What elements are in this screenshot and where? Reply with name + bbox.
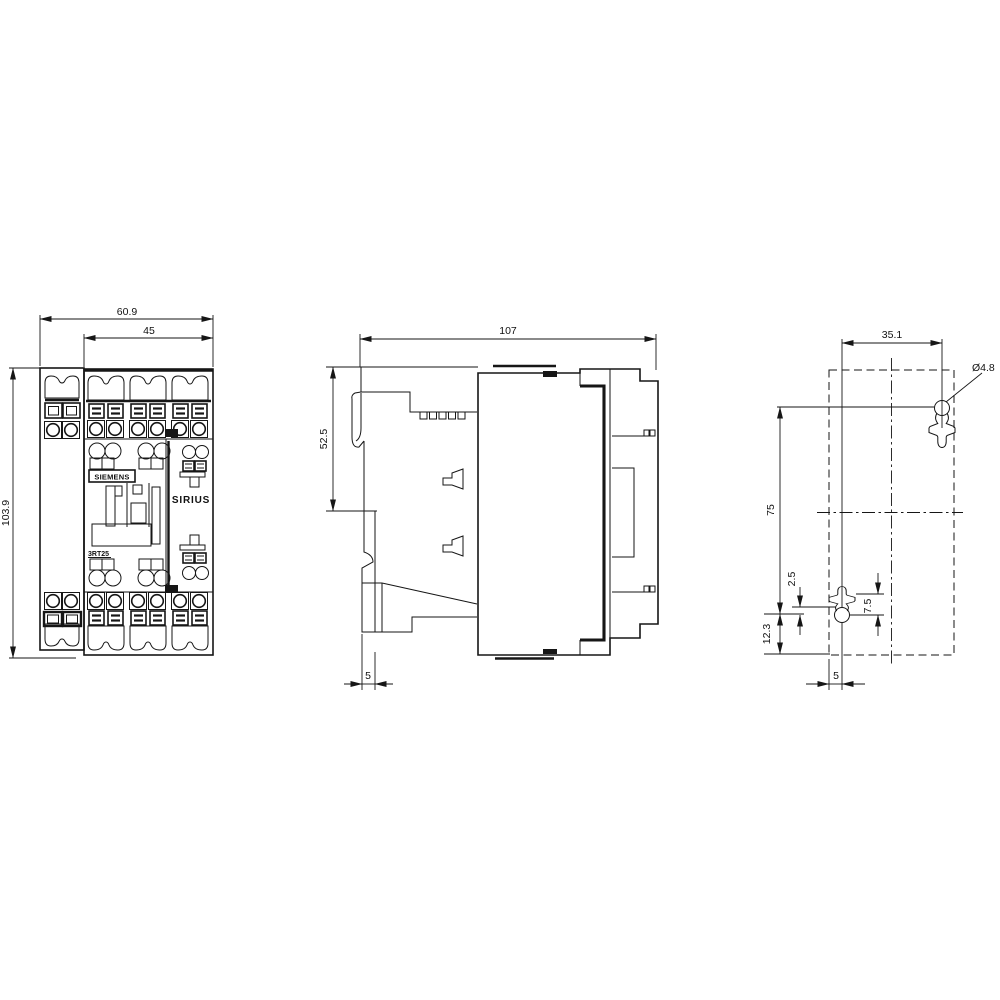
dim-side-edge-offset: 5 (806, 659, 865, 690)
technical-drawing: 60.9 45 103.9 (0, 0, 1000, 1000)
dim-overall-width: 60.9 (40, 306, 213, 367)
dim-depth: 107 (360, 325, 656, 370)
dim-hole-spacing-horizontal: 35.1 (842, 329, 942, 690)
dim-slot-length-label: 7.5 (862, 599, 874, 614)
dim-edge-offset-label: 5 (833, 670, 839, 682)
dim-hole-spacing-v-label: 75 (765, 504, 777, 516)
front-view: 60.9 45 103.9 (0, 306, 213, 658)
dim-hole-spacing-h-label: 35.1 (882, 329, 903, 341)
din-rail-profile (326, 367, 478, 632)
brand-label: SIEMENS (94, 473, 129, 482)
product-line-label: SIRIUS (172, 495, 210, 506)
dim-rail-offset-label: 5 (365, 670, 371, 682)
drilling-plan: Ø4.8 35.1 75 12.3 2.5 (761, 329, 995, 690)
contactor-body-side (443, 366, 658, 659)
dim-height-label: 103.9 (0, 500, 12, 526)
dim-rail-offset: 5 (344, 634, 393, 690)
hole-diameter-label: Ø4.8 (972, 362, 995, 374)
model-label: 3RT25 (88, 551, 109, 558)
dim-height: 103.9 (0, 368, 76, 658)
mechanism-detail (89, 443, 170, 586)
dim-overall-width-label: 60.9 (117, 306, 138, 318)
dim-slot-length: 7.5 (850, 573, 884, 636)
dim-body-width: 45 (84, 325, 213, 367)
release-lever-upper (443, 469, 463, 489)
coil-terminal-module (40, 368, 84, 650)
aux-contact-column: SIRIUS (165, 429, 210, 593)
dim-depth-label: 107 (499, 325, 517, 337)
dim-body-width-label: 45 (143, 325, 155, 337)
contactor-body-front: SIEMENS 3RT25 SIRIUS (84, 369, 213, 655)
release-lever-lower (443, 536, 463, 556)
dim-hole-diameter: Ø4.8 (946, 362, 995, 402)
side-view: 107 52.5 5 (318, 325, 658, 690)
dim-hole-spacing-vertical: 75 12.3 (761, 407, 934, 654)
dim-upper-depth-label: 52.5 (318, 429, 330, 450)
dim-bottom-offset-label: 12.3 (761, 624, 773, 645)
dim-upper-depth: 52.5 (318, 367, 377, 511)
dim-slot-offset-label: 2.5 (786, 572, 798, 587)
